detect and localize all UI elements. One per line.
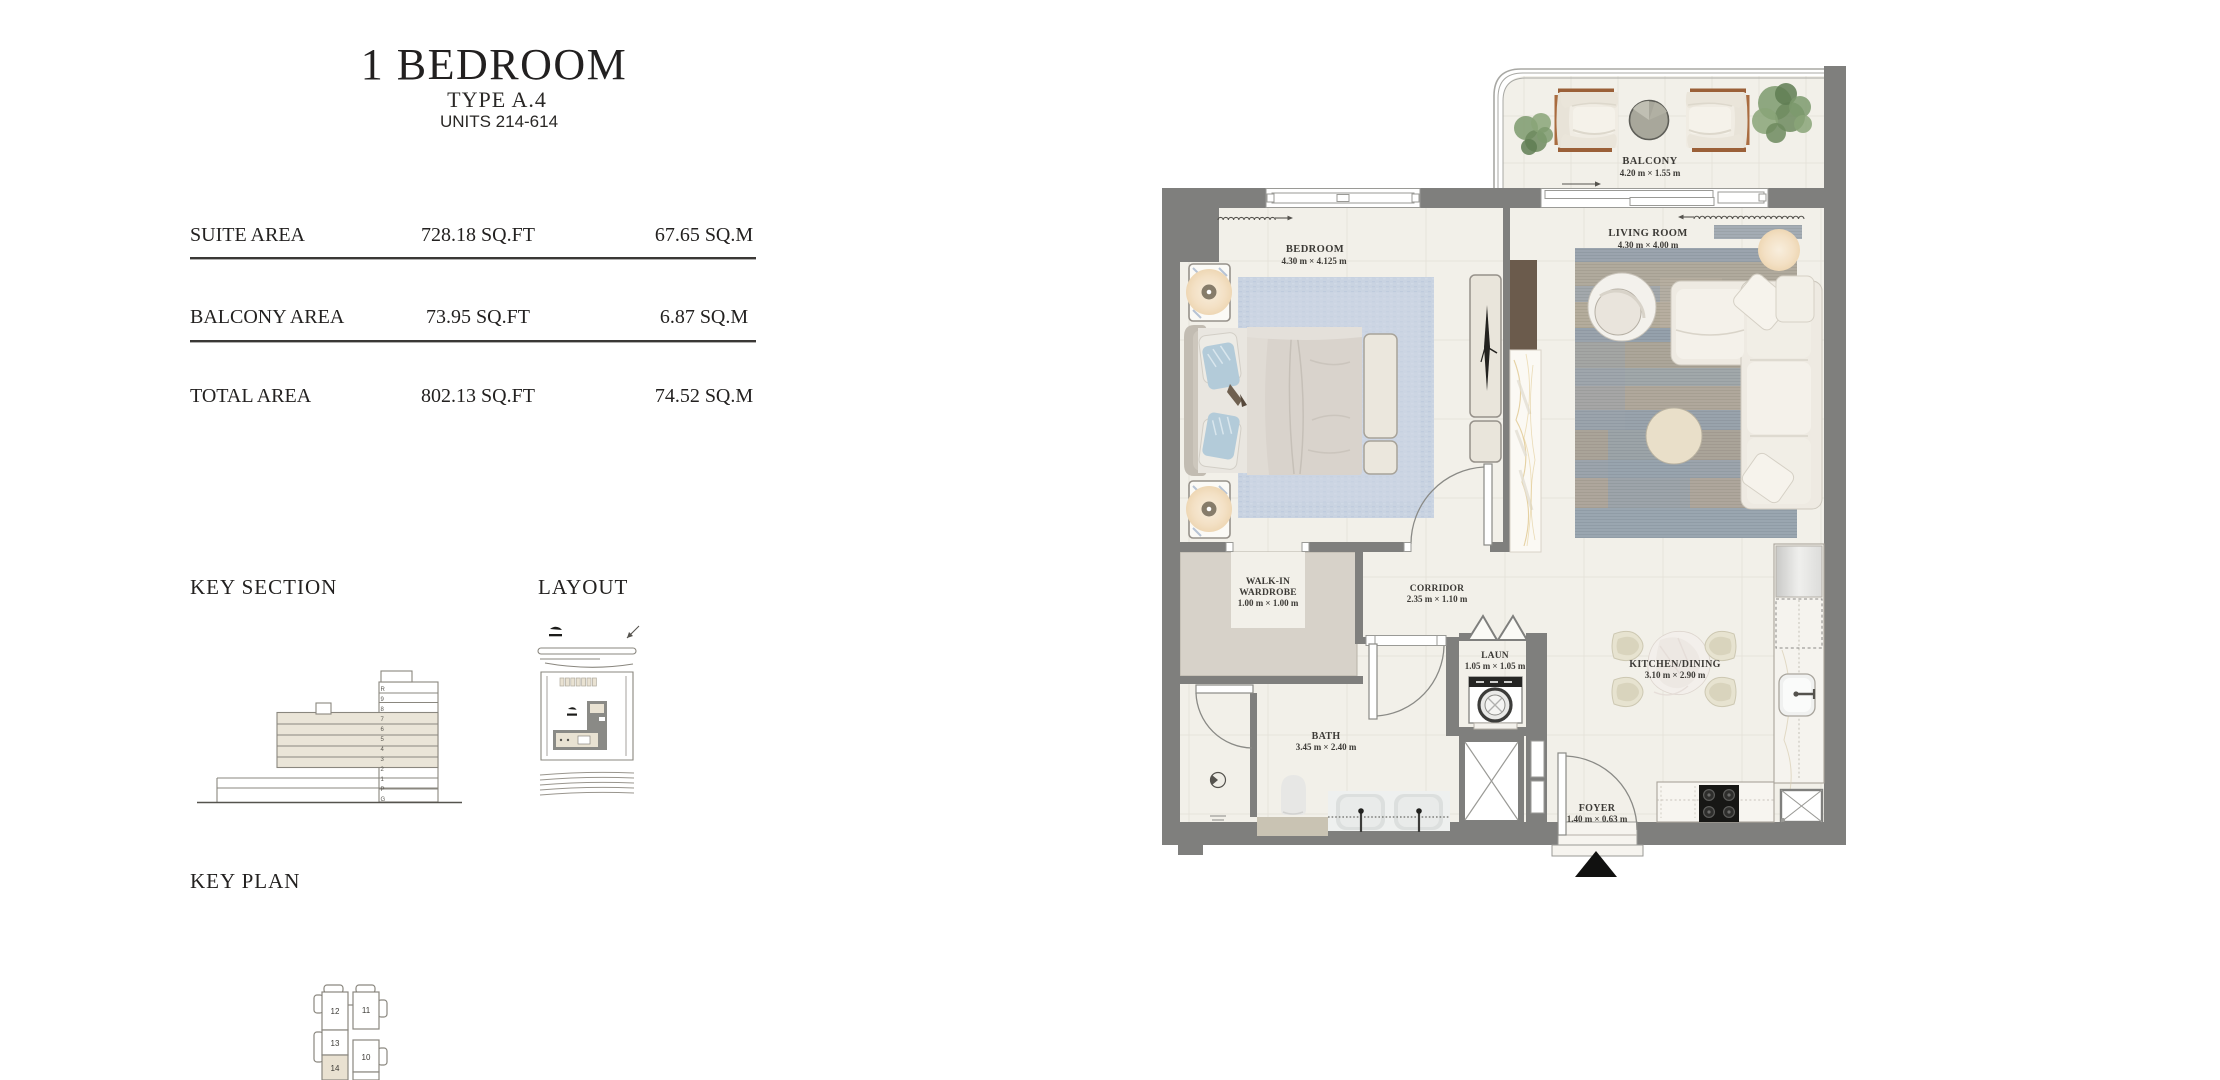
svg-text:CORRIDOR: CORRIDOR bbox=[1410, 584, 1464, 594]
svg-text:TOTAL AREA: TOTAL AREA bbox=[190, 385, 312, 407]
svg-text:BALCONY: BALCONY bbox=[1622, 156, 1677, 167]
svg-text:KEY SECTION: KEY SECTION bbox=[190, 575, 337, 599]
svg-text:SUITE AREA: SUITE AREA bbox=[190, 224, 306, 246]
svg-text:LAYOUT: LAYOUT bbox=[538, 575, 628, 599]
svg-text:4.30 m × 4.00 m: 4.30 m × 4.00 m bbox=[1618, 240, 1679, 250]
svg-text:KITCHEN/DINING: KITCHEN/DINING bbox=[1629, 659, 1720, 670]
svg-text:4.30 m × 4.125 m: 4.30 m × 4.125 m bbox=[1281, 256, 1347, 266]
svg-text:3.10 m × 2.90 m: 3.10 m × 2.90 m bbox=[1645, 670, 1706, 680]
svg-text:74.52 SQ.M: 74.52 SQ.M bbox=[655, 385, 754, 407]
svg-text:LIVING ROOM: LIVING ROOM bbox=[1608, 228, 1687, 239]
svg-text:12: 12 bbox=[331, 1007, 340, 1016]
svg-text:4.20 m × 1.55 m: 4.20 m × 1.55 m bbox=[1620, 168, 1681, 178]
svg-text:802.13 SQ.FT: 802.13 SQ.FT bbox=[421, 385, 535, 407]
svg-text:KEY PLAN: KEY PLAN bbox=[190, 869, 300, 893]
svg-text:G: G bbox=[381, 797, 386, 803]
svg-text:3.45 m × 2.40 m: 3.45 m × 2.40 m bbox=[1296, 742, 1357, 752]
svg-text:11: 11 bbox=[362, 1006, 371, 1015]
svg-text:73.95 SQ.FT: 73.95 SQ.FT bbox=[426, 306, 530, 328]
svg-text:10: 10 bbox=[362, 1053, 371, 1062]
svg-text:1.40 m × 0.63 m: 1.40 m × 0.63 m bbox=[1567, 814, 1628, 824]
svg-text:BEDROOM: BEDROOM bbox=[1286, 244, 1344, 255]
svg-text:13: 13 bbox=[331, 1039, 340, 1048]
svg-text:R: R bbox=[381, 687, 386, 693]
svg-text:P: P bbox=[381, 787, 385, 793]
svg-text:BALCONY AREA: BALCONY AREA bbox=[190, 306, 345, 328]
svg-text:1.05 m × 1.05 m: 1.05 m × 1.05 m bbox=[1465, 661, 1526, 671]
svg-text:WALK-IN: WALK-IN bbox=[1246, 577, 1290, 587]
svg-text:728.18 SQ.FT: 728.18 SQ.FT bbox=[421, 224, 535, 246]
svg-text:TYPE A.4: TYPE A.4 bbox=[447, 87, 547, 112]
svg-text:FOYER: FOYER bbox=[1579, 803, 1616, 814]
svg-text:67.65 SQ.M: 67.65 SQ.M bbox=[655, 224, 754, 246]
svg-text:14: 14 bbox=[331, 1064, 340, 1073]
svg-text:LAUN: LAUN bbox=[1481, 651, 1509, 661]
svg-text:UNITS 214-614: UNITS 214-614 bbox=[440, 112, 558, 131]
svg-text:WARDROBE: WARDROBE bbox=[1239, 588, 1297, 598]
svg-text:2.35 m × 1.10 m: 2.35 m × 1.10 m bbox=[1407, 594, 1468, 604]
svg-text:BATH: BATH bbox=[1312, 731, 1341, 742]
svg-text:6.87 SQ.M: 6.87 SQ.M bbox=[660, 306, 749, 328]
svg-text:1.00 m × 1.00 m: 1.00 m × 1.00 m bbox=[1238, 598, 1299, 608]
svg-text:1 BEDROOM: 1 BEDROOM bbox=[361, 40, 628, 89]
